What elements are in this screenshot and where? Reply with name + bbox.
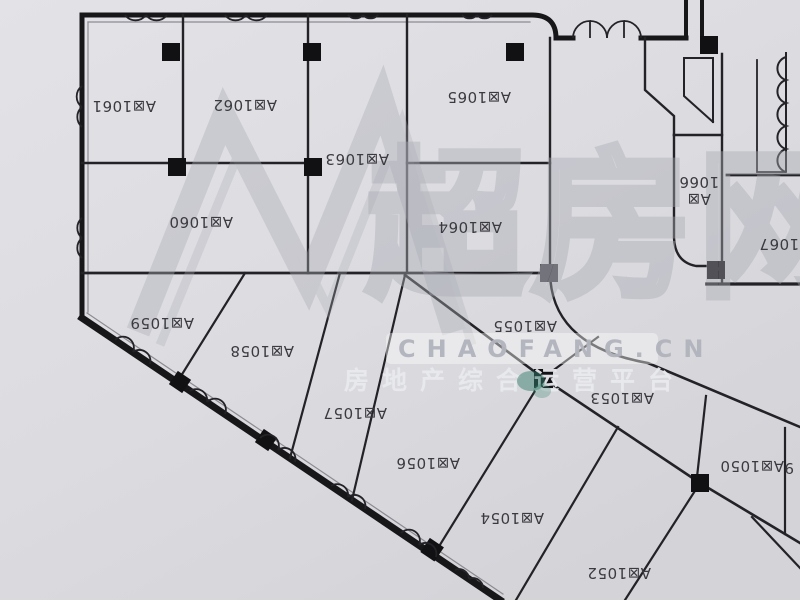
unit-label-1065: A⊠1065 bbox=[447, 88, 511, 106]
unit-label-1058: A⊠1058 bbox=[230, 342, 294, 360]
unit-label-1067: A⊠1067 bbox=[759, 235, 800, 253]
unit-label-1055: A⊠1055 bbox=[493, 317, 557, 335]
unit-label-1064: A⊠1064 bbox=[438, 218, 502, 236]
unit-label-1057: A⊠1057 bbox=[323, 404, 387, 422]
watermark-domain: CHAOFANG.CN bbox=[398, 335, 715, 363]
watermark-brand: 超房网 bbox=[366, 133, 800, 320]
unit-label-1063: A⊠1063 bbox=[325, 150, 389, 168]
unit-label-1050: A⊠1050 bbox=[720, 457, 784, 475]
unit-label-1053: A⊠1053 bbox=[590, 389, 654, 407]
unit-label-1054: A⊠1054 bbox=[480, 509, 544, 527]
unit-label-1062: A⊠1062 bbox=[213, 96, 277, 114]
unit-label-partial: 9 bbox=[784, 459, 794, 477]
unit-label-1061: A⊠1061 bbox=[92, 97, 156, 115]
unit-label-1056: A⊠1056 bbox=[396, 454, 460, 472]
floor-plan-svg: 超房网 CHAOFANG.CN 房地产综合运营平台 A⊠1061A⊠1062A⊠… bbox=[0, 0, 800, 600]
unit-label-1059: A⊠1059 bbox=[130, 314, 194, 332]
unit-label-1060: A⊠1060 bbox=[169, 213, 233, 231]
unit-label-1052: A⊠1052 bbox=[587, 564, 651, 582]
floor-plan-image: 超房网 CHAOFANG.CN 房地产综合运营平台 A⊠1061A⊠1062A⊠… bbox=[0, 0, 800, 600]
